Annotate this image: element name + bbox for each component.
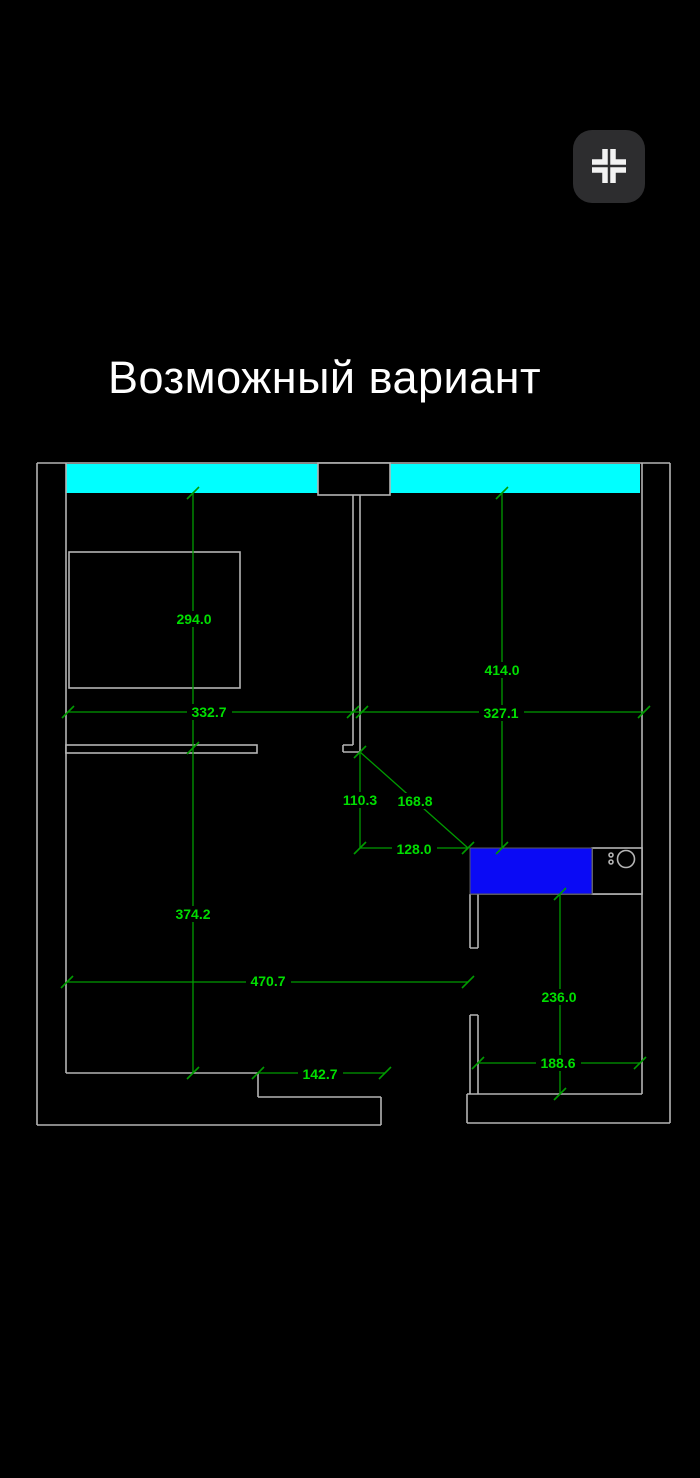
dimension-label: 236.0: [541, 989, 576, 1005]
shelf-partition: [66, 745, 257, 753]
dimension-label: 110.3: [343, 792, 377, 808]
wall-pier: [318, 463, 390, 495]
dimension-label: 332.7: [191, 704, 226, 720]
counter-outline: [592, 848, 642, 894]
dimension-label: 414.0: [484, 662, 519, 678]
dimension-label: 327.1: [483, 705, 518, 721]
blue-fixture: [470, 848, 592, 894]
screen: Возможный вариант: [0, 0, 700, 1478]
dimension-label: 374.2: [175, 906, 210, 922]
dimension-label: 128.0: [396, 841, 431, 857]
window-left: [66, 464, 320, 493]
window-right: [390, 464, 640, 493]
sink-counter: [592, 848, 642, 894]
dimension-label: 188.6: [540, 1055, 575, 1071]
dimension-label: 168.8: [397, 793, 432, 809]
floor-plan: 294.0 414.0 332.7 327.1 110.3 168.8 128.…: [0, 0, 700, 1478]
dimension-label: 142.7: [302, 1066, 337, 1082]
dimension-label: 294.0: [176, 611, 211, 627]
dimension-label: 470.7: [250, 973, 285, 989]
